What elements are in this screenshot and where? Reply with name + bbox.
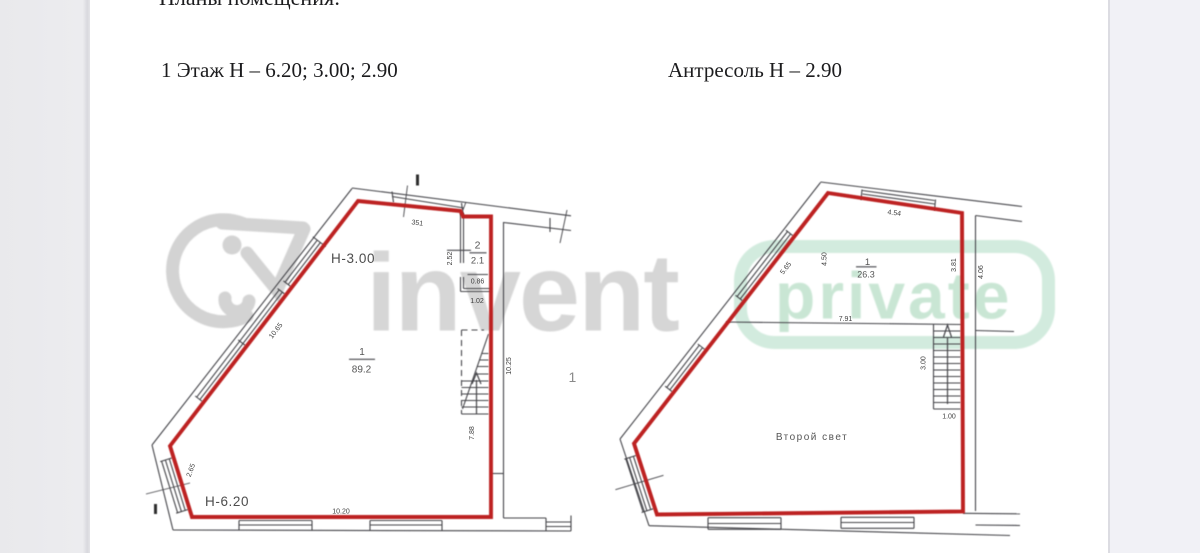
svg-text:1: 1 [359,347,365,358]
svg-text:7.88: 7.88 [469,426,476,440]
svg-text:2.65: 2.65 [186,463,197,478]
svg-text:0.86: 0.86 [471,279,485,286]
svg-text:26.3: 26.3 [857,270,875,280]
svg-text:3.00: 3.00 [921,356,928,370]
svg-text:89.2: 89.2 [352,365,372,376]
svg-text:1: 1 [865,257,870,268]
svg-text:3.81: 3.81 [951,258,958,272]
svg-text:4.54: 4.54 [887,209,902,218]
svg-text:4.06: 4.06 [978,265,985,279]
svg-text:2.52: 2.52 [447,252,454,266]
svg-text:2.1: 2.1 [471,256,484,267]
svg-text:Второй свет: Второй свет [776,432,848,443]
svg-text:10.25: 10.25 [506,357,513,375]
svg-text:351: 351 [411,219,424,227]
svg-text:7.91: 7.91 [839,316,853,323]
svg-text:invent: invent [366,232,679,355]
svg-text:Н-6.20: Н-6.20 [205,494,249,509]
svg-text:2: 2 [475,240,481,252]
svg-text:4.50: 4.50 [822,252,829,266]
svg-text:1.02: 1.02 [470,298,484,305]
svg-text:10.65: 10.65 [268,322,284,340]
svg-text:Н-3.00: Н-3.00 [331,251,375,266]
svg-text:10.20: 10.20 [332,509,350,516]
svg-text:1: 1 [569,369,577,385]
svg-text:1.00: 1.00 [942,414,956,421]
svg-text:private: private [775,259,1012,333]
